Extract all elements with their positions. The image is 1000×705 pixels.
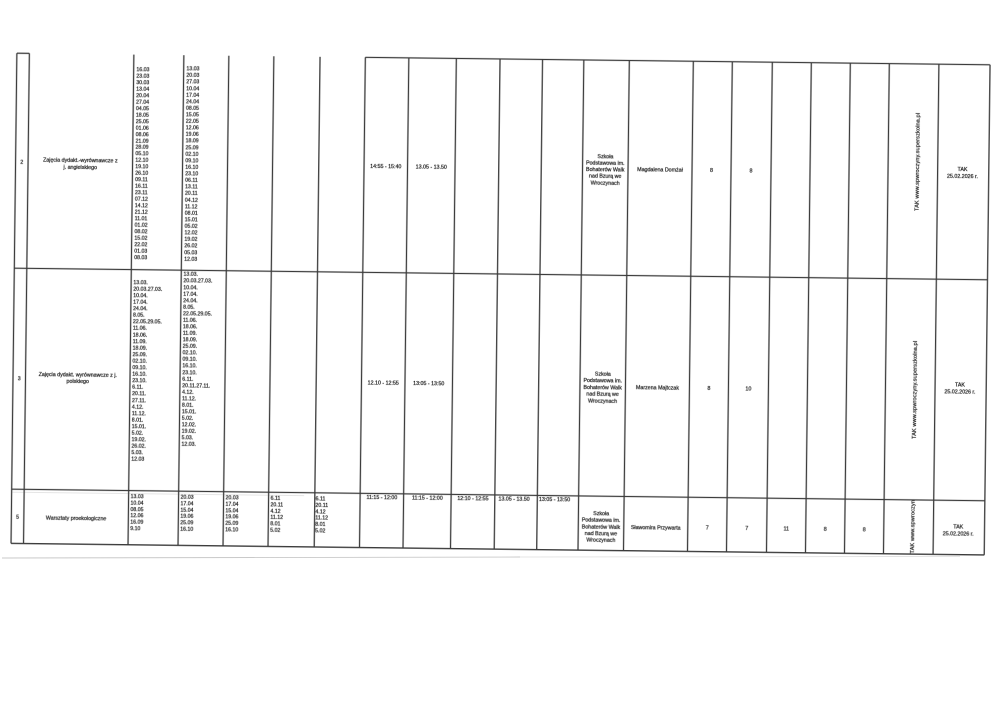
svg-text:8: 8: [710, 168, 713, 174]
svg-text:Magdalena Domżał: Magdalena Domżał: [637, 167, 684, 174]
svg-text:TAK www.spwroczyny.superszkoln: TAK www.spwroczyny.superszkolna.pl: [912, 341, 919, 439]
svg-text:13.05 - 13.50: 13.05 - 13.50: [498, 496, 529, 502]
svg-text:3: 3: [18, 376, 21, 382]
svg-text:7: 7: [745, 526, 748, 532]
svg-text:2: 2: [20, 160, 23, 166]
svg-text:20.0317.0415.0419.0625.0916.10: 20.0317.0415.0419.0625.0916.10: [225, 495, 239, 533]
svg-text:8: 8: [863, 527, 866, 533]
svg-text:5: 5: [16, 515, 19, 521]
svg-text:11: 11: [783, 526, 789, 532]
svg-text:8: 8: [750, 168, 753, 174]
svg-text:11:15 - 12:00: 11:15 - 12:00: [366, 495, 397, 501]
svg-text:12.10 - 12:55: 12.10 - 12:55: [368, 380, 399, 386]
svg-text:13:05 - 13:50: 13:05 - 13:50: [413, 381, 444, 387]
svg-text:Warsztaty proekologiczne: Warsztaty proekologiczne: [46, 516, 107, 523]
svg-text:13.05 - 13.50: 13.05 - 13.50: [416, 164, 447, 170]
svg-text:13.0320.0327.0310.0417.0424.04: 13.0320.0327.0310.0417.0424.0408.0515.05…: [184, 66, 199, 262]
svg-text:TAK www.spwroczyny.superszkoln: TAK www.spwroczyny.superszkolna.pl: [915, 113, 922, 211]
svg-text:7: 7: [706, 525, 709, 531]
svg-text:11:15 - 12:00: 11:15 - 12:00: [412, 495, 443, 501]
svg-text:13:05 - 13:50: 13:05 - 13:50: [539, 497, 570, 503]
svg-text:20.0317.0415.0419.0625.0916.10: 20.0317.0415.0419.0625.0916.10: [180, 495, 194, 533]
svg-text:10: 10: [745, 386, 751, 392]
svg-text:14:55 - 15:40: 14:55 - 15:40: [370, 164, 401, 170]
svg-text:12:10 - 12:55: 12:10 - 12:55: [457, 496, 488, 502]
svg-text:Sławomira Przywarta: Sławomira Przywarta: [631, 525, 681, 532]
svg-text:8: 8: [707, 386, 710, 392]
svg-text:Marzena Majtczak: Marzena Majtczak: [636, 385, 679, 392]
svg-text:8: 8: [824, 527, 827, 533]
svg-text:16.0323.0330.0313.0420.0427.04: 16.0323.0330.0313.0420.0427.0404.0518.05…: [134, 67, 149, 261]
